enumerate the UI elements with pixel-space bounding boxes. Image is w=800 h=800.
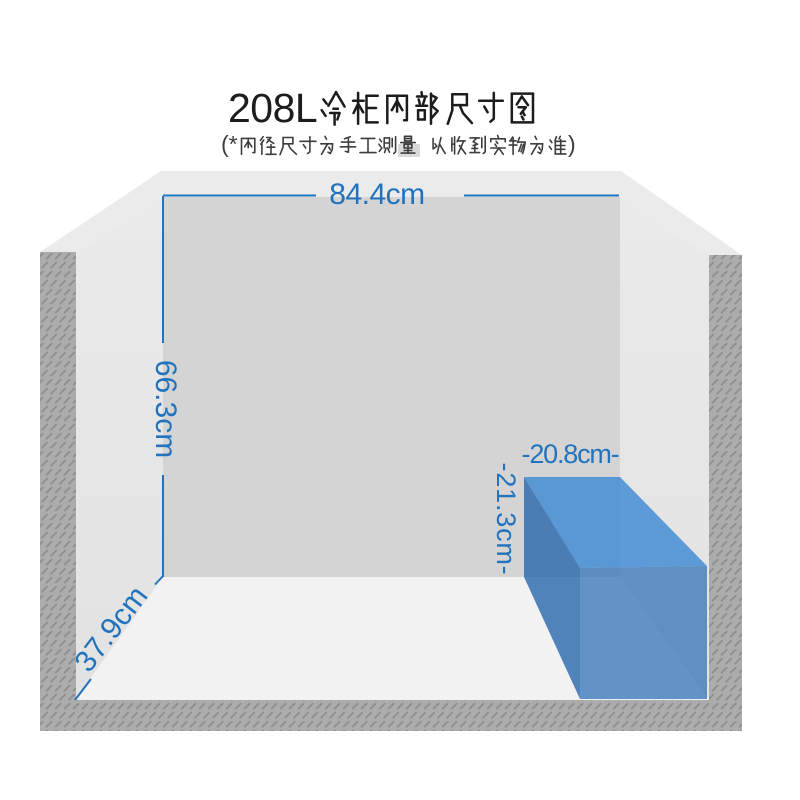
svg-text:66.3cm: 66.3cm bbox=[149, 360, 182, 458]
svg-text:(*: (* bbox=[221, 131, 238, 157]
svg-text:): ) bbox=[568, 131, 576, 157]
svg-text:-21.3cm-: -21.3cm- bbox=[491, 463, 521, 576]
svg-text:208L: 208L bbox=[228, 85, 317, 131]
svg-text:84.4cm: 84.4cm bbox=[329, 178, 424, 211]
svg-text:-20.8cm-: -20.8cm- bbox=[522, 439, 619, 469]
